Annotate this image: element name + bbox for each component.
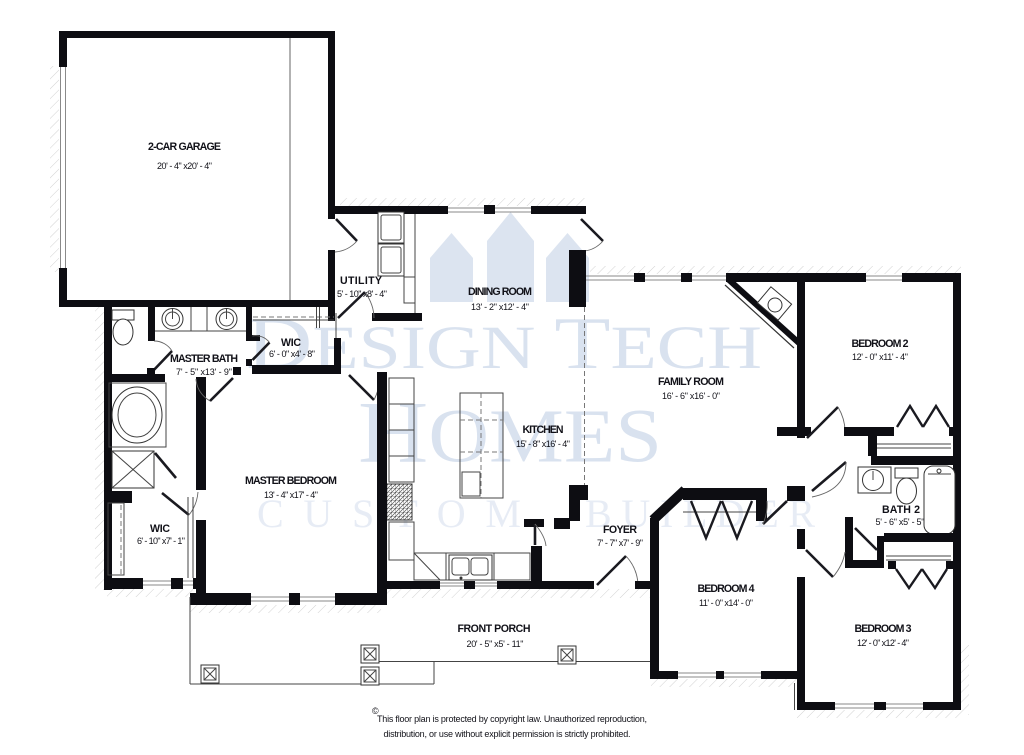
svg-text:2-CAR GARAGE: 2-CAR GARAGE	[148, 141, 221, 153]
svg-text:FAMILY ROOM: FAMILY ROOM	[658, 376, 724, 388]
svg-text:15' - 8" x16' - 4": 15' - 8" x16' - 4"	[516, 439, 570, 449]
svg-text:HOMES: HOMES	[358, 385, 662, 482]
svg-text:5' - 10" x8' - 4": 5' - 10" x8' - 4"	[337, 289, 387, 299]
svg-text:7' - 5" x13' - 9": 7' - 5" x13' - 9"	[176, 367, 232, 377]
svg-text:KITCHEN: KITCHEN	[523, 424, 564, 436]
svg-text:12' - 0" x11' - 4": 12' - 0" x11' - 4"	[852, 352, 908, 362]
svg-text:12' - 0" x12' - 4": 12' - 0" x12' - 4"	[857, 638, 909, 648]
svg-text:FOYER: FOYER	[603, 524, 637, 536]
svg-text:MASTER BATH: MASTER BATH	[170, 353, 238, 365]
svg-text:WIC: WIC	[281, 337, 301, 349]
svg-text:distribution, or use without e: distribution, or use without explicit pe…	[384, 729, 631, 739]
svg-text:7' - 7" x7' - 9": 7' - 7" x7' - 9"	[597, 538, 643, 548]
svg-text:MASTER BEDROOM: MASTER BEDROOM	[245, 475, 337, 487]
svg-text:WIC: WIC	[150, 523, 170, 535]
svg-text:5' - 6" x5' - 5": 5' - 6" x5' - 5"	[876, 517, 925, 527]
svg-text:20' - 5" x5' - 11": 20' - 5" x5' - 11"	[467, 639, 524, 649]
svg-text:BEDROOM 2: BEDROOM 2	[852, 338, 909, 350]
svg-text:13' - 2" x12' - 4": 13' - 2" x12' - 4"	[471, 302, 529, 312]
svg-text:DINING ROOM: DINING ROOM	[468, 286, 532, 298]
svg-text:BATH 2: BATH 2	[882, 504, 920, 516]
svg-text:BEDROOM 3: BEDROOM 3	[855, 623, 912, 635]
svg-text:16' - 6" x16' - 0": 16' - 6" x16' - 0"	[662, 391, 720, 401]
svg-text:UTILITY: UTILITY	[340, 275, 382, 287]
svg-text:This floor plan is protected b: This floor plan is protected by copyrigh…	[377, 714, 647, 724]
svg-text:BEDROOM 4: BEDROOM 4	[698, 583, 755, 595]
svg-text:13' - 4" x17' - 4": 13' - 4" x17' - 4"	[264, 490, 318, 500]
svg-text:20' - 4" x20' - 4": 20' - 4" x20' - 4"	[157, 161, 212, 171]
svg-text:6' - 0" x4' - 8": 6' - 0" x4' - 8"	[269, 349, 315, 359]
svg-text:6' - 10" x7' - 1": 6' - 10" x7' - 1"	[137, 536, 185, 546]
svg-text:11' - 0" x14' - 0": 11' - 0" x14' - 0"	[699, 598, 753, 608]
svg-text:FRONT PORCH: FRONT PORCH	[458, 623, 531, 635]
